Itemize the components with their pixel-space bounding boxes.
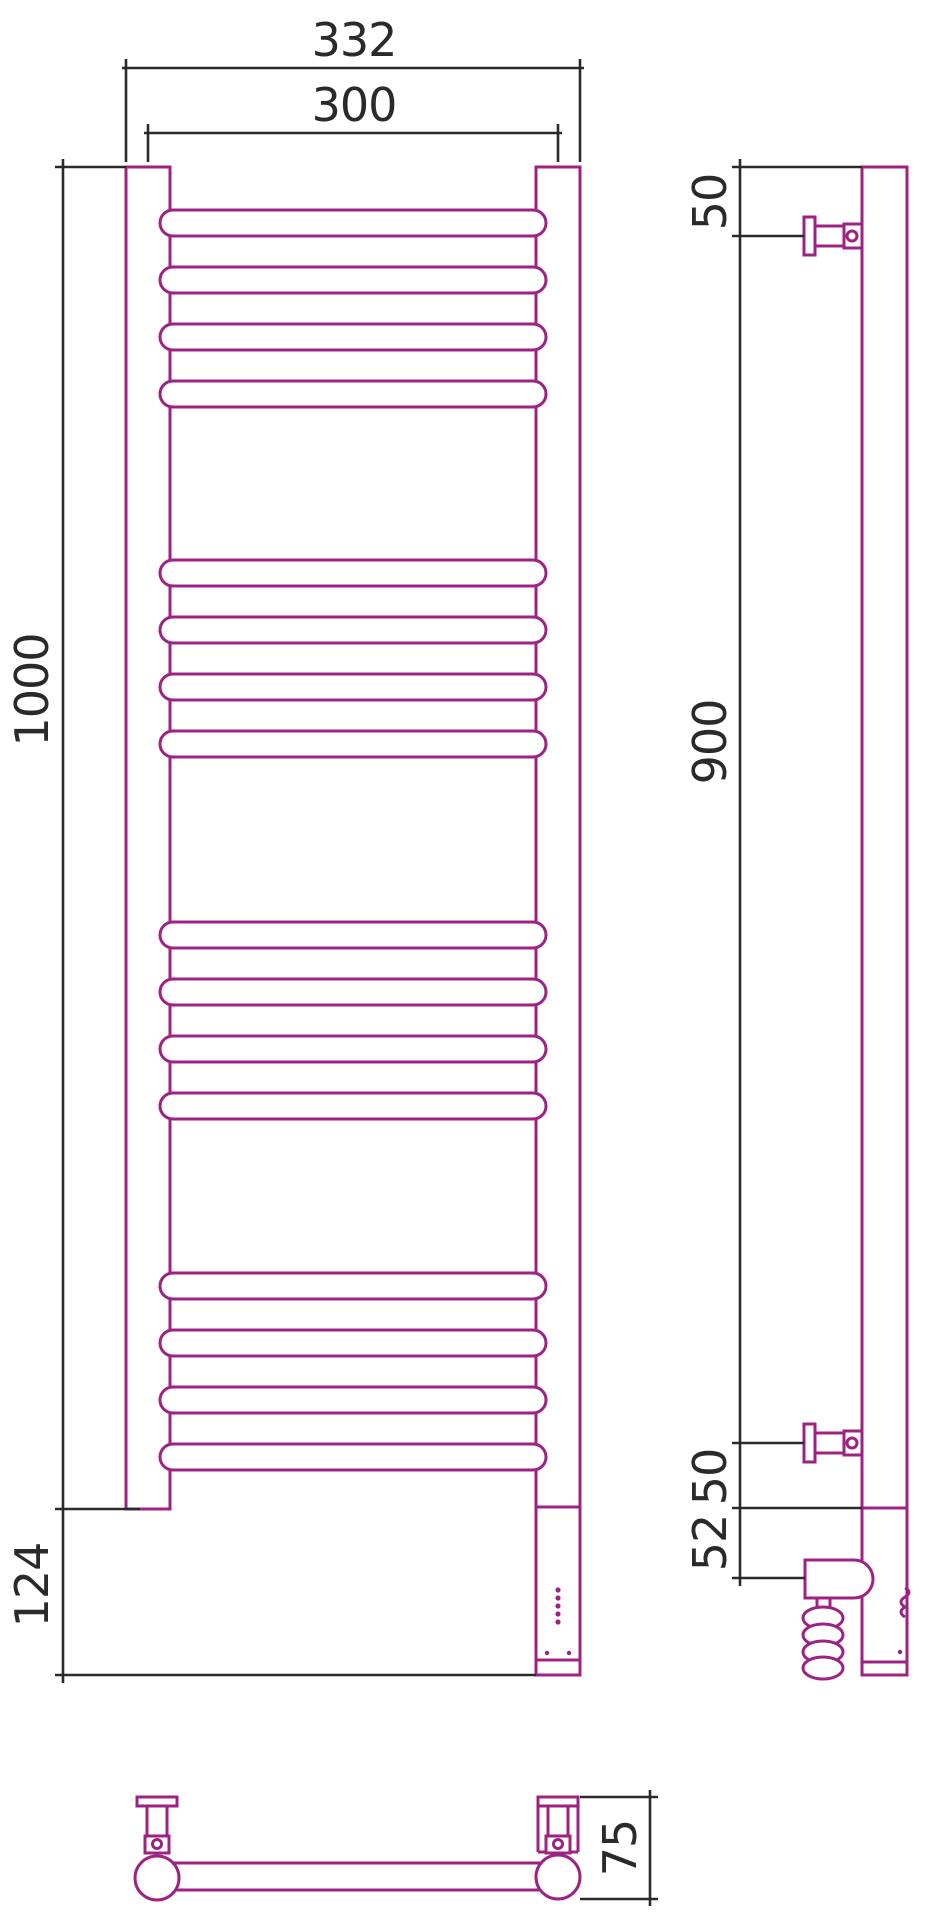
bracket-arm [815, 1433, 844, 1453]
rung [160, 1387, 546, 1413]
bracket-screw [847, 231, 857, 241]
side-view: 50 900 50 52 [683, 159, 909, 1679]
front-view: 332 300 1000 124 [5, 13, 584, 1683]
dim-label-top-bracket: 50 [683, 174, 737, 231]
dim-label-overall-width: 332 [312, 13, 397, 67]
dim-label-heater-axis: 52 [683, 1515, 737, 1572]
bracket-arm [147, 1806, 167, 1836]
rung [160, 1036, 546, 1062]
bracket-screw [153, 1840, 162, 1849]
bracket-wall-plate [804, 217, 815, 255]
bracket-wall-plate [804, 1424, 815, 1462]
side-dimensions: 50 900 50 52 [683, 159, 862, 1586]
right-tube-section [536, 1855, 580, 1899]
dim-label-rail-width: 300 [312, 78, 397, 132]
rung [160, 324, 546, 350]
bottom-right-bracket [538, 1797, 578, 1853]
dim-label-bottom-bracket: 50 [683, 1449, 737, 1506]
rung [160, 922, 546, 948]
rung [160, 979, 546, 1005]
bracket-arm [815, 226, 844, 246]
rung [160, 210, 546, 236]
plug-housing [805, 1560, 873, 1598]
upper-wall-bracket [804, 217, 862, 255]
bracket-screw [554, 1840, 563, 1849]
coiled-cable [803, 1607, 843, 1679]
dim-rail-width: 300 [144, 78, 562, 162]
bottom-left-bracket [137, 1797, 177, 1853]
drawing-canvas: 332 300 1000 124 [0, 0, 929, 1920]
dim-label-bracket-span: 900 [683, 700, 737, 785]
rung [160, 1093, 546, 1119]
rung [160, 1273, 546, 1299]
rung [160, 560, 546, 586]
rung [160, 1444, 546, 1470]
front-left-tube [126, 167, 170, 1509]
bottom-view: 75 [135, 1790, 658, 1906]
rung [160, 617, 546, 643]
dim-depth: 75 [580, 1790, 658, 1906]
rung [160, 1330, 546, 1356]
towel-rail-drawing: 332 300 1000 124 [0, 0, 929, 1920]
rung [160, 267, 546, 293]
bracket-screw [847, 1438, 857, 1448]
bracket-arm [548, 1806, 568, 1836]
dim-label-bottom-section: 124 [5, 1543, 59, 1628]
lower-wall-bracket [804, 1424, 862, 1462]
dim-label-height: 1000 [5, 633, 59, 746]
rung [160, 674, 546, 700]
left-tube-section [135, 1856, 179, 1900]
dim-label-depth: 75 [593, 1820, 647, 1877]
side-indicator-dot [898, 1650, 902, 1654]
side-tube [862, 167, 907, 1675]
rung [160, 381, 546, 407]
rung [160, 731, 546, 757]
